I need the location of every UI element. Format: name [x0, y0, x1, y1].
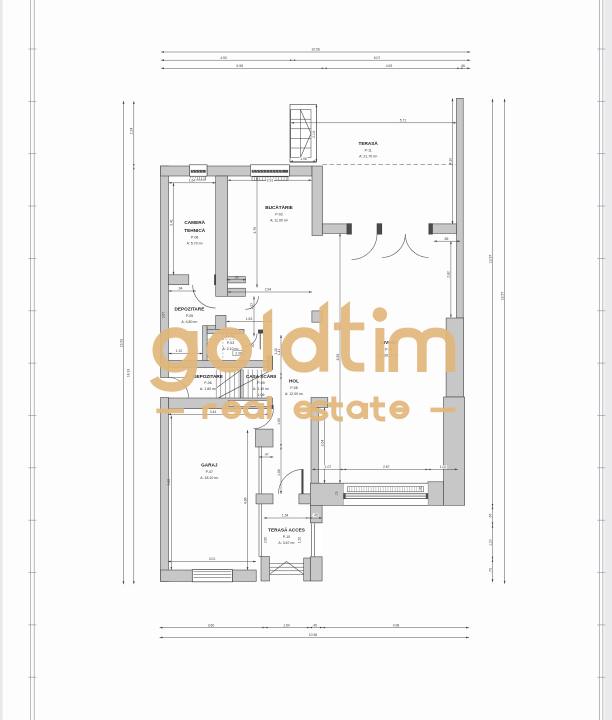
svg-text:TEHNICĂ: TEHNICĂ — [184, 227, 205, 233]
svg-text:BUCĂTĂRIE: BUCĂTĂRIE — [265, 204, 293, 210]
svg-text:.73: .73 — [335, 491, 339, 496]
svg-text:1.54: 1.54 — [283, 623, 290, 627]
svg-text:.73: .73 — [488, 568, 492, 573]
svg-text:P-09: P-09 — [257, 381, 264, 385]
svg-text:2.91: 2.91 — [267, 179, 274, 183]
svg-text:.65: .65 — [234, 275, 239, 279]
svg-text:A: 21.70 m²: A: 21.70 m² — [359, 154, 378, 158]
svg-text:2.24: 2.24 — [130, 128, 134, 135]
svg-text:.47: .47 — [264, 453, 269, 457]
svg-text:P-06: P-06 — [204, 381, 211, 385]
svg-text:DEPOZITARE: DEPOZITARE — [193, 374, 223, 379]
svg-text:.85: .85 — [444, 237, 449, 241]
svg-text:1.63: 1.63 — [246, 317, 253, 321]
svg-text:2.67: 2.67 — [162, 312, 166, 318]
svg-text:A: 2.10 m²: A: 2.10 m² — [222, 347, 239, 351]
svg-text:1.08: 1.08 — [300, 157, 307, 161]
svg-text:3.44: 3.44 — [210, 410, 217, 414]
svg-text:CAMERĂ: CAMERĂ — [184, 219, 205, 225]
svg-text:16.57: 16.57 — [500, 292, 504, 301]
svg-text:P-03: P-03 — [227, 341, 234, 345]
svg-text:3.79: 3.79 — [253, 227, 257, 234]
svg-text:GARAJ: GARAJ — [201, 463, 218, 468]
svg-text:4.50: 4.50 — [220, 56, 227, 60]
svg-text:P-08: P-08 — [290, 386, 297, 390]
svg-text:.45: .45 — [313, 514, 318, 518]
svg-text:DEPOZITARE: DEPOZITARE — [174, 307, 204, 312]
svg-text:1.37: 1.37 — [250, 303, 254, 310]
svg-text:P-02: P-02 — [275, 212, 282, 216]
svg-text:CASA SCĂRII: CASA SCĂRII — [246, 373, 276, 379]
svg-text:1.40: 1.40 — [274, 348, 278, 354]
svg-text:4.63: 4.63 — [386, 64, 393, 68]
svg-text:A: 12.00 m²: A: 12.00 m² — [285, 392, 304, 396]
svg-text:HOL: HOL — [289, 379, 299, 384]
svg-text:1.65: 1.65 — [277, 418, 281, 425]
svg-text:.49: .49 — [419, 486, 423, 491]
svg-text:5.71: 5.71 — [400, 119, 407, 123]
svg-text:A: 5.70 m²: A: 5.70 m² — [187, 242, 204, 246]
svg-text:1.10: 1.10 — [176, 349, 183, 353]
svg-text:10.56: 10.56 — [309, 633, 318, 637]
svg-text:2.14: 2.14 — [312, 131, 316, 138]
svg-text:2.94: 2.94 — [265, 288, 272, 292]
svg-text:6.07: 6.07 — [374, 56, 381, 60]
svg-text:5.85: 5.85 — [167, 479, 171, 486]
svg-text:2.87: 2.87 — [383, 465, 390, 469]
svg-text:3.01: 3.01 — [209, 557, 216, 561]
svg-text:A: 1.10 m²: A: 1.10 m² — [253, 387, 270, 391]
svg-text:.45: .45 — [312, 623, 317, 627]
svg-text:A: 1.80 m²: A: 1.80 m² — [200, 387, 217, 391]
svg-text:1.02: 1.02 — [440, 465, 447, 469]
svg-text:1.06: 1.06 — [258, 393, 265, 397]
svg-text:P-06: P-06 — [191, 235, 198, 239]
svg-text:5.58: 5.58 — [236, 64, 243, 68]
svg-text:3.41: 3.41 — [169, 219, 173, 226]
svg-text:.36: .36 — [460, 64, 465, 68]
svg-text:TERASĂ: TERASĂ — [359, 140, 379, 146]
svg-text:1.54: 1.54 — [282, 514, 289, 518]
svg-text:2.82: 2.82 — [447, 271, 451, 278]
svg-text:1.20: 1.20 — [298, 537, 302, 543]
svg-text:.94: .94 — [178, 287, 183, 291]
svg-text:1.66: 1.66 — [277, 469, 281, 476]
svg-text:2.60: 2.60 — [264, 537, 268, 543]
svg-text:A: 11.00 m²: A: 11.00 m² — [270, 218, 289, 222]
svg-text:A: 4.80 m²: A: 4.80 m² — [181, 320, 198, 324]
svg-text:4.30: 4.30 — [448, 158, 452, 165]
svg-text:1.07: 1.07 — [325, 465, 332, 469]
svg-text:8.59: 8.59 — [336, 354, 340, 361]
svg-text:P-10: P-10 — [283, 535, 290, 539]
svg-text:A: 3.67 m²: A: 3.67 m² — [278, 541, 295, 545]
svg-text:TERASĂ ACCES: TERASĂ ACCES — [268, 527, 305, 533]
svg-text:P-07: P-07 — [206, 470, 213, 474]
svg-text:A: 18.10 m²: A: 18.10 m² — [200, 476, 219, 480]
svg-text:4.86: 4.86 — [243, 497, 247, 504]
svg-text:13.97: 13.97 — [488, 255, 492, 264]
svg-text:P-11: P-11 — [365, 148, 372, 152]
svg-text:4.98: 4.98 — [393, 623, 400, 627]
svg-text:3.60: 3.60 — [208, 623, 215, 627]
svg-text:P-05: P-05 — [186, 314, 193, 318]
svg-text:1.20: 1.20 — [488, 539, 492, 546]
svg-text:2.64: 2.64 — [320, 440, 324, 447]
svg-text:14.33: 14.33 — [126, 369, 130, 378]
svg-text:.67: .67 — [488, 514, 492, 519]
svg-text:10.56: 10.56 — [311, 48, 320, 52]
svg-text:16.52: 16.52 — [119, 339, 123, 348]
svg-text:1.64: 1.64 — [189, 179, 196, 183]
